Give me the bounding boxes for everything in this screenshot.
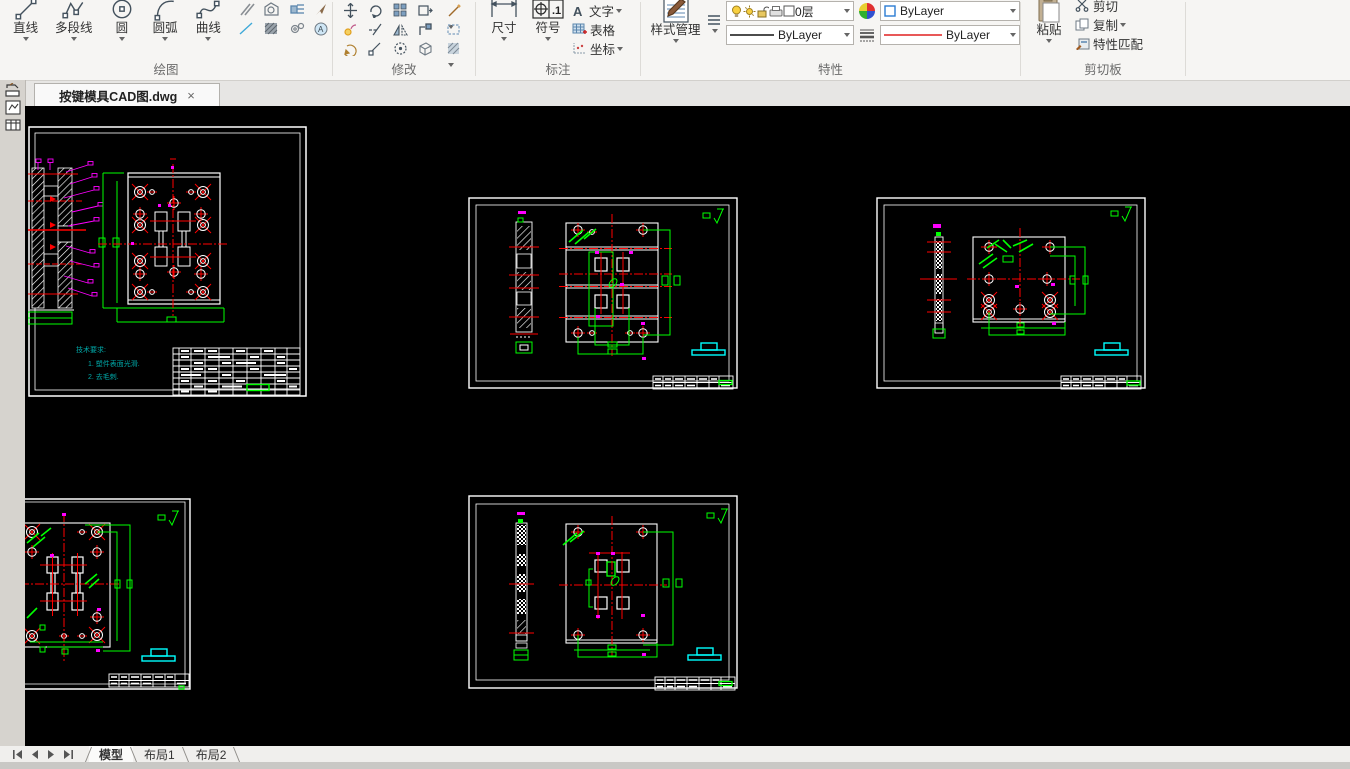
match-properties-icon — [1075, 37, 1090, 50]
hatch-icon[interactable] — [263, 21, 280, 36]
svg-text:1. 塑件表面光滑.: 1. 塑件表面光滑. — [88, 359, 140, 368]
side-section[interactable] — [920, 232, 957, 338]
clipboard-panel-label: 剪切板 — [1021, 59, 1185, 78]
text-button[interactable]: A 文字 — [572, 1, 623, 20]
symbol-button[interactable]: .1 符号 — [526, 0, 570, 58]
rotate-icon[interactable] — [368, 3, 385, 18]
layout1-tab[interactable]: 布局1 — [134, 746, 185, 762]
annotate-panel-label: 标注 — [476, 59, 640, 78]
pedestal-part[interactable] — [142, 649, 175, 661]
view-mold-assembly-top[interactable]: 技术要求: 1. 塑件表面光滑. 2. 去毛刺. — [28, 126, 308, 398]
parallel-lines-icon[interactable] — [238, 2, 255, 17]
pedestal-part[interactable] — [1095, 343, 1128, 355]
lock-icon — [756, 5, 769, 18]
spline-icon — [195, 0, 221, 21]
lineweight-icon[interactable] — [858, 28, 876, 42]
color-swatch — [884, 5, 896, 17]
roughness-symbol[interactable] — [158, 511, 179, 525]
title-block[interactable] — [653, 376, 733, 389]
section-view[interactable] — [28, 159, 103, 324]
arc-icon — [152, 0, 178, 21]
left-toolbar — [0, 80, 26, 746]
sun-icon — [743, 5, 756, 18]
file-tab-title: 按键模具CAD图.dwg — [59, 86, 177, 105]
scissors-icon — [1075, 0, 1090, 12]
svg-text:A: A — [318, 25, 324, 34]
spline-label: 曲线 — [196, 21, 221, 35]
view-core-plate[interactable] — [467, 494, 740, 691]
layout-view-icon[interactable] — [5, 100, 21, 115]
prev-tab-icon[interactable] — [31, 750, 39, 759]
lineweight-value: ByLayer — [778, 28, 822, 42]
extend-icon[interactable] — [368, 41, 385, 56]
last-tab-icon[interactable] — [63, 750, 74, 759]
stretch-icon[interactable] — [418, 3, 435, 18]
layout2-tab[interactable]: 布局2 — [186, 746, 237, 762]
paste-icon — [1035, 0, 1063, 23]
lineweight-sample — [730, 33, 774, 37]
scale-icon[interactable] — [343, 41, 360, 56]
line-button[interactable]: 直线 — [4, 0, 47, 41]
linetype-sample — [884, 33, 942, 37]
rectangle-edit-icon[interactable] — [446, 22, 463, 37]
drawing-canvas[interactable]: 技术要求: 1. 塑件表面光滑. 2. 去毛刺. — [25, 106, 1350, 746]
linetype-value: ByLayer — [946, 28, 990, 42]
array-icon[interactable] — [393, 3, 410, 18]
table-view-icon[interactable] — [5, 118, 21, 132]
drawing-frame — [877, 198, 1145, 388]
drawing-frame — [469, 198, 737, 388]
view-moving-plate[interactable] — [467, 196, 740, 391]
list-menu-button[interactable] — [706, 14, 722, 33]
move-icon[interactable] — [343, 3, 360, 18]
dimension-label: 尺寸 — [491, 21, 516, 35]
table-button[interactable]: 表格 — [572, 20, 623, 39]
side-section[interactable] — [509, 218, 539, 353]
file-tab-close-icon[interactable]: × — [187, 88, 195, 103]
dimension-icon — [488, 0, 520, 21]
cut-button[interactable]: 剪切 — [1075, 0, 1143, 15]
region-icon[interactable] — [263, 2, 280, 17]
spline-button[interactable]: 曲线 — [187, 0, 230, 41]
color-select[interactable]: ByLayer — [880, 1, 1020, 21]
file-tab[interactable]: 按键模具CAD图.dwg × — [34, 83, 220, 107]
style-manager-label: 样式管理 — [650, 23, 700, 37]
side-section[interactable] — [509, 519, 534, 660]
wipeout-icon[interactable]: A — [313, 21, 330, 36]
arc-label: 圆弧 — [153, 21, 178, 35]
first-tab-icon[interactable] — [12, 750, 23, 759]
plan-view[interactable] — [559, 516, 682, 657]
symbol-label: 符号 — [535, 21, 560, 35]
orbit-box-icon[interactable] — [418, 41, 435, 56]
layer-select[interactable]: 0层 — [726, 1, 854, 21]
panel-properties: 样式管理 0层 — [641, 0, 1020, 80]
roughness-symbol[interactable] — [703, 209, 724, 223]
copy-button[interactable]: 复制 — [1075, 15, 1143, 34]
text-icon: A — [572, 4, 586, 17]
offset-icon[interactable] — [343, 22, 360, 37]
paste-button[interactable]: 粘贴 — [1027, 0, 1071, 53]
next-tab-icon[interactable] — [47, 750, 55, 759]
title-block[interactable] — [1061, 376, 1141, 389]
lightbulb-icon — [730, 5, 743, 18]
plan-view[interactable] — [967, 228, 1088, 335]
draw-panel-label: 绘图 — [0, 59, 332, 78]
file-tab-bar: 按键模具CAD图.dwg × — [0, 80, 1350, 107]
panel-annotate: 尺寸 .1 符号 A 文字 表格 坐标 标注 — [476, 0, 640, 80]
plan-view[interactable] — [559, 214, 680, 360]
coordinate-icon — [572, 42, 587, 55]
status-strip — [0, 762, 1350, 769]
svg-text:技术要求:: 技术要求: — [76, 345, 106, 354]
technical-notes[interactable]: 技术要求: 1. 塑件表面光滑. 2. 去毛刺. — [76, 345, 140, 381]
view-cavity-plate[interactable] — [25, 498, 192, 691]
style-manager-icon — [661, 0, 691, 23]
circle-button[interactable]: 圆 — [100, 0, 143, 41]
hatch-edit-icon[interactable] — [446, 41, 463, 56]
drawing-frame — [469, 496, 737, 688]
list-icon — [706, 14, 722, 26]
gear-icon[interactable] — [289, 21, 306, 36]
construction-line-icon[interactable] — [238, 21, 255, 36]
paste-label: 粘贴 — [1036, 23, 1061, 37]
mirror-icon[interactable] — [393, 22, 410, 37]
coordinate-button[interactable]: 坐标 — [572, 39, 623, 58]
copy-icon — [1075, 18, 1090, 31]
symbol-icon: .1 — [531, 0, 565, 21]
roughness-symbol[interactable] — [707, 509, 728, 523]
pointer-icon[interactable] — [313, 2, 330, 17]
lineweight-select[interactable]: ByLayer — [726, 25, 854, 45]
properties-panel-label: 特性 — [641, 59, 1020, 78]
svg-text:.1: .1 — [552, 5, 561, 17]
section-bottom-bracket — [28, 312, 72, 324]
panel-clipboard: 粘贴 剪切 复制 特性匹配 剪切板 — [1021, 0, 1185, 80]
linetype-select[interactable]: ByLayer — [880, 25, 1020, 45]
circle-icon — [109, 0, 135, 21]
bolt-icon[interactable] — [289, 2, 306, 17]
roughness-symbol[interactable] — [1111, 207, 1132, 221]
svg-text:A: A — [573, 4, 583, 17]
layer-color-swatch — [783, 5, 795, 17]
modify-panel-label: 修改 — [333, 59, 475, 78]
polyline-button[interactable]: 多段线 — [47, 0, 100, 41]
pedestal-part[interactable] — [688, 648, 721, 660]
join-icon[interactable] — [418, 22, 435, 37]
rotate-ref-icon[interactable] — [393, 41, 410, 56]
model-tab[interactable]: 模型 — [89, 746, 133, 762]
match-properties-button[interactable]: 特性匹配 — [1075, 34, 1143, 53]
layout-tab-bar: 模型 布局1 布局2 — [0, 746, 1350, 762]
ejector-marks — [979, 240, 1033, 268]
dimension-button[interactable]: 尺寸 — [482, 0, 526, 58]
polyline-label: 多段线 — [55, 21, 93, 35]
line-icon — [13, 0, 39, 21]
panel-draw: 直线 多段线 圆 圆弧 曲线 — [0, 0, 332, 80]
arc-button[interactable]: 圆弧 — [144, 0, 187, 41]
plan-view[interactable] — [25, 513, 132, 663]
layer-value: 0层 — [795, 3, 814, 20]
view-fixed-plate[interactable] — [875, 196, 1148, 391]
printer-icon — [769, 5, 783, 18]
color-wheel-icon[interactable] — [858, 2, 876, 20]
style-manager-button[interactable]: 样式管理 — [645, 0, 706, 43]
pedestal-part[interactable] — [692, 343, 725, 355]
erase-icon[interactable] — [446, 3, 463, 18]
title-block[interactable] — [109, 674, 189, 689]
line-label: 直线 — [13, 21, 38, 35]
ribbon: 直线 多段线 圆 圆弧 曲线 — [0, 0, 1350, 81]
trim-icon[interactable] — [368, 22, 385, 37]
panel-modify: 修改 — [333, 0, 475, 80]
svg-text:2. 去毛刺.: 2. 去毛刺. — [88, 372, 119, 381]
plot-preview-icon[interactable] — [4, 83, 22, 97]
color-value: ByLayer — [900, 4, 944, 18]
table-icon — [572, 23, 587, 36]
circle-label: 圆 — [116, 21, 129, 35]
plan-view[interactable] — [98, 159, 228, 322]
title-block[interactable] — [173, 348, 300, 395]
polyline-icon — [61, 0, 87, 21]
